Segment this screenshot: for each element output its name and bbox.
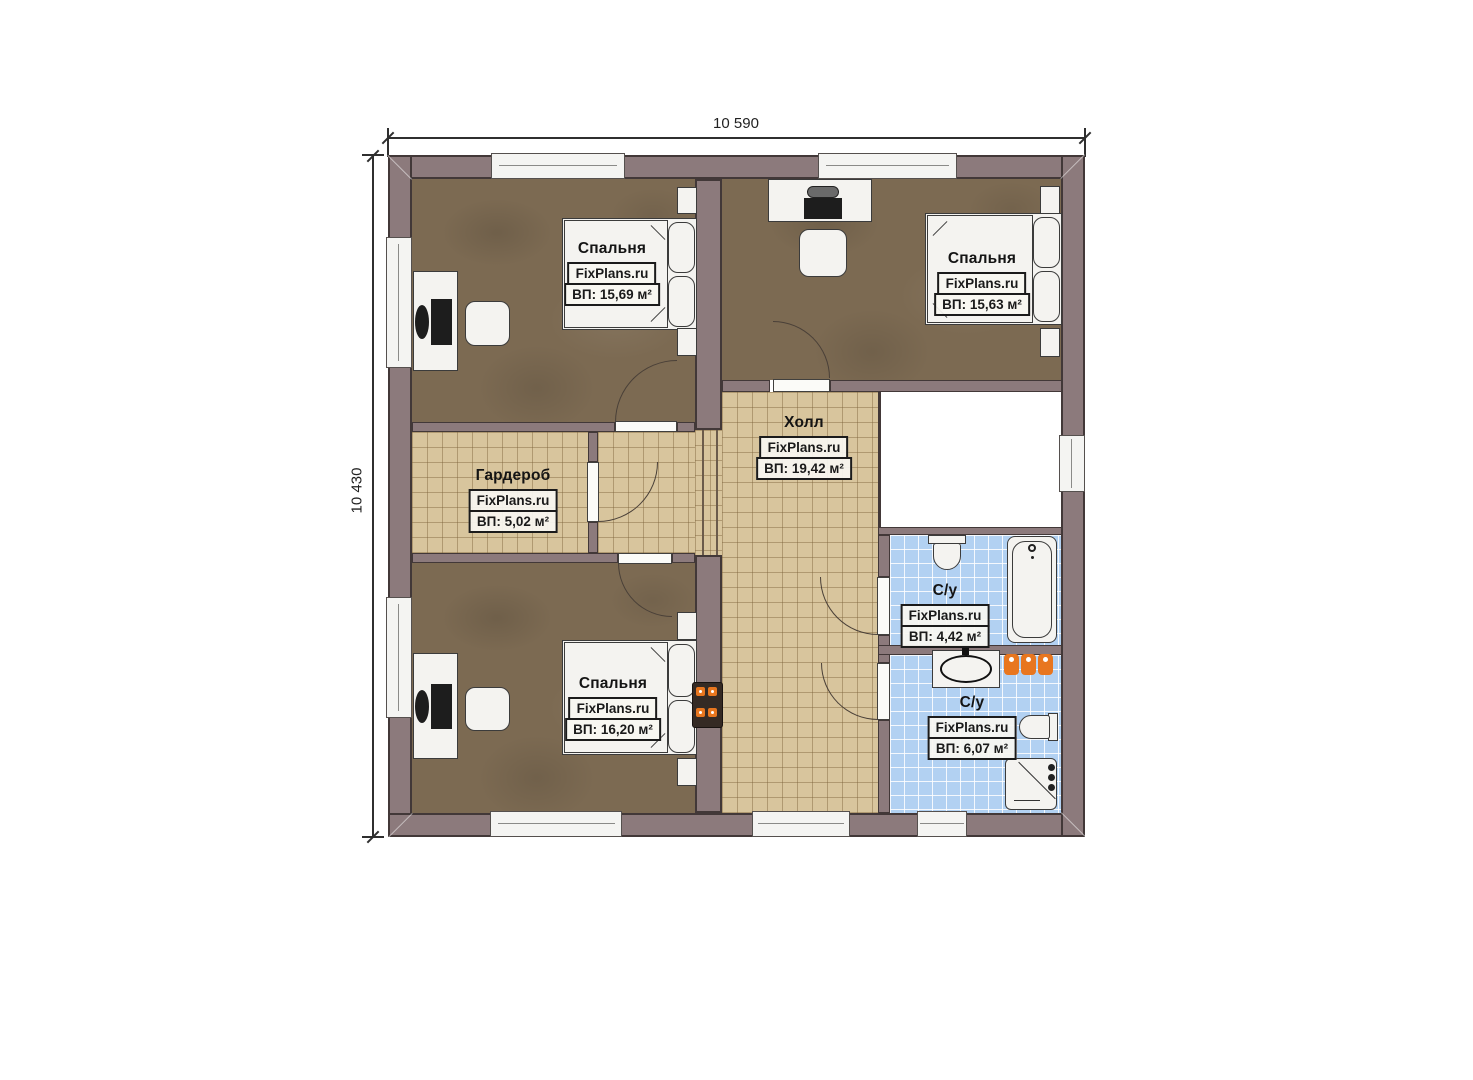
room-label-hall: Холл FixPlans.ru ВП: 19,42 м² [756,414,852,480]
monitor [431,299,452,345]
shower-fixture [1048,784,1055,791]
room-name: Спальня [578,240,646,258]
nightstand [677,328,697,356]
window [818,153,957,179]
dimension-line-left [372,155,374,837]
toilet [933,543,961,570]
room-label-bathroom-bottom: С/у FixPlans.ru ВП: 6,07 м² [928,694,1017,760]
room-watermark: FixPlans.ru [928,716,1017,739]
room-area: ВП: 15,63 м² [934,293,1030,316]
threshold-line [702,430,704,555]
room-area: ВП: 15,69 м² [564,283,660,306]
dimension-width-label: 10 590 [686,115,786,132]
monitor [431,684,452,729]
room-name: Спальня [948,250,1016,268]
room-label-bedroom-top-right: Спальня FixPlans.ru ВП: 15,63 м² [934,250,1030,316]
hall-open-area-divider [878,392,881,527]
stove-burner [696,708,705,717]
office-chair [465,687,510,731]
bed-pillow [668,700,695,753]
room-watermark: FixPlans.ru [760,436,849,459]
partition-bathroom-top-left [878,535,890,577]
room-area: ВП: 4,42 м² [901,625,989,648]
nightstand [677,612,697,640]
office-chair [799,229,847,277]
stove-burner [708,708,717,717]
room-watermark: FixPlans.ru [569,697,658,720]
nightstand [1040,328,1060,357]
window [386,237,412,368]
door-bedroom-top-right [773,379,830,392]
room-watermark: FixPlans.ru [938,272,1027,295]
partition-bedroom-tl-bottom [412,422,615,432]
window [752,811,850,837]
partition-bathroom-bottom-left [878,720,890,813]
door-bathroom-top [877,577,890,635]
window [1059,435,1085,492]
door-wardrobe [587,462,599,522]
room-label-wardrobe: Гардероб FixPlans.ru ВП: 5,02 м² [469,467,558,533]
room-name: С/у [960,694,985,712]
dimension-extension [1084,128,1086,157]
room-watermark: FixPlans.ru [901,604,990,627]
window [386,597,412,718]
bed-pillow [668,222,695,273]
door-bedroom-bottom-left [618,553,672,564]
partition-central-upper [695,179,722,430]
door-bathroom-bottom [877,663,890,720]
towel-hook [1021,654,1036,675]
desk-speaker [415,305,429,339]
room-name: Холл [784,414,824,432]
room-area: ВП: 6,07 м² [928,737,1016,760]
room-label-bedroom-top-left: Спальня FixPlans.ru ВП: 15,69 м² [564,240,660,306]
dimension-line-top [388,137,1085,139]
door-bedroom-top-left [615,421,677,432]
partition-bedroom-bl-top [672,553,695,563]
partition-bedroom-tr-bottom [830,380,1062,392]
printer-top [807,186,839,198]
floor-plan-page: Спальня FixPlans.ru ВП: 15,69 м² Спальня… [0,0,1473,1080]
nightstand [677,187,697,214]
partition-bedroom-tl-bottom [677,422,695,432]
office-chair [465,301,510,346]
room-area: ВП: 19,42 м² [756,457,852,480]
exterior-wall-right [1061,155,1085,837]
room-name: С/у [933,582,958,600]
shower-drain-line [1014,800,1040,801]
towel-hook [1038,654,1053,675]
room-name: Спальня [579,675,647,693]
room-label-bathroom-top: С/у FixPlans.ru ВП: 4,42 м² [901,582,990,648]
bed-pillow [1033,271,1060,322]
partition-bathroom-top-north [878,527,1062,535]
room-area: ВП: 16,20 м² [565,718,661,741]
room-area: ВП: 5,02 м² [469,510,557,533]
room-watermark: FixPlans.ru [469,489,558,512]
dimension-height-label: 10 430 [349,441,366,541]
window [491,153,625,179]
room-watermark: FixPlans.ru [568,262,657,285]
partition-wardrobe-right [588,432,598,462]
towel-hook [1004,654,1019,675]
nightstand [677,758,697,786]
nightstand [1040,186,1060,214]
window [490,811,622,837]
desk-speaker [415,690,429,723]
bathtub-drain [1031,556,1034,559]
bathtub-faucet [1028,544,1036,552]
corridor-hall-threshold [695,430,722,555]
window [917,811,967,837]
unlabeled-white-area [881,392,1062,527]
bed-pillow [1033,217,1060,268]
partition-bedroom-tr-bottom [722,380,770,392]
toilet [1019,715,1050,739]
room-name: Гардероб [476,467,551,485]
shower-fixture [1048,764,1055,771]
stove-burner [708,687,717,696]
threshold-line [716,430,718,555]
dimension-extension [387,128,389,157]
bed-pillow [668,276,695,327]
sink-basin [940,655,992,683]
stove-burner [696,687,705,696]
partition-bedroom-bl-top [412,553,618,563]
bed-pillow [668,644,695,697]
partition-wardrobe-right [588,522,598,553]
room-label-bedroom-bottom-left: Спальня FixPlans.ru ВП: 16,20 м² [565,675,661,741]
printer [804,198,842,219]
shower-fixture [1048,774,1055,781]
